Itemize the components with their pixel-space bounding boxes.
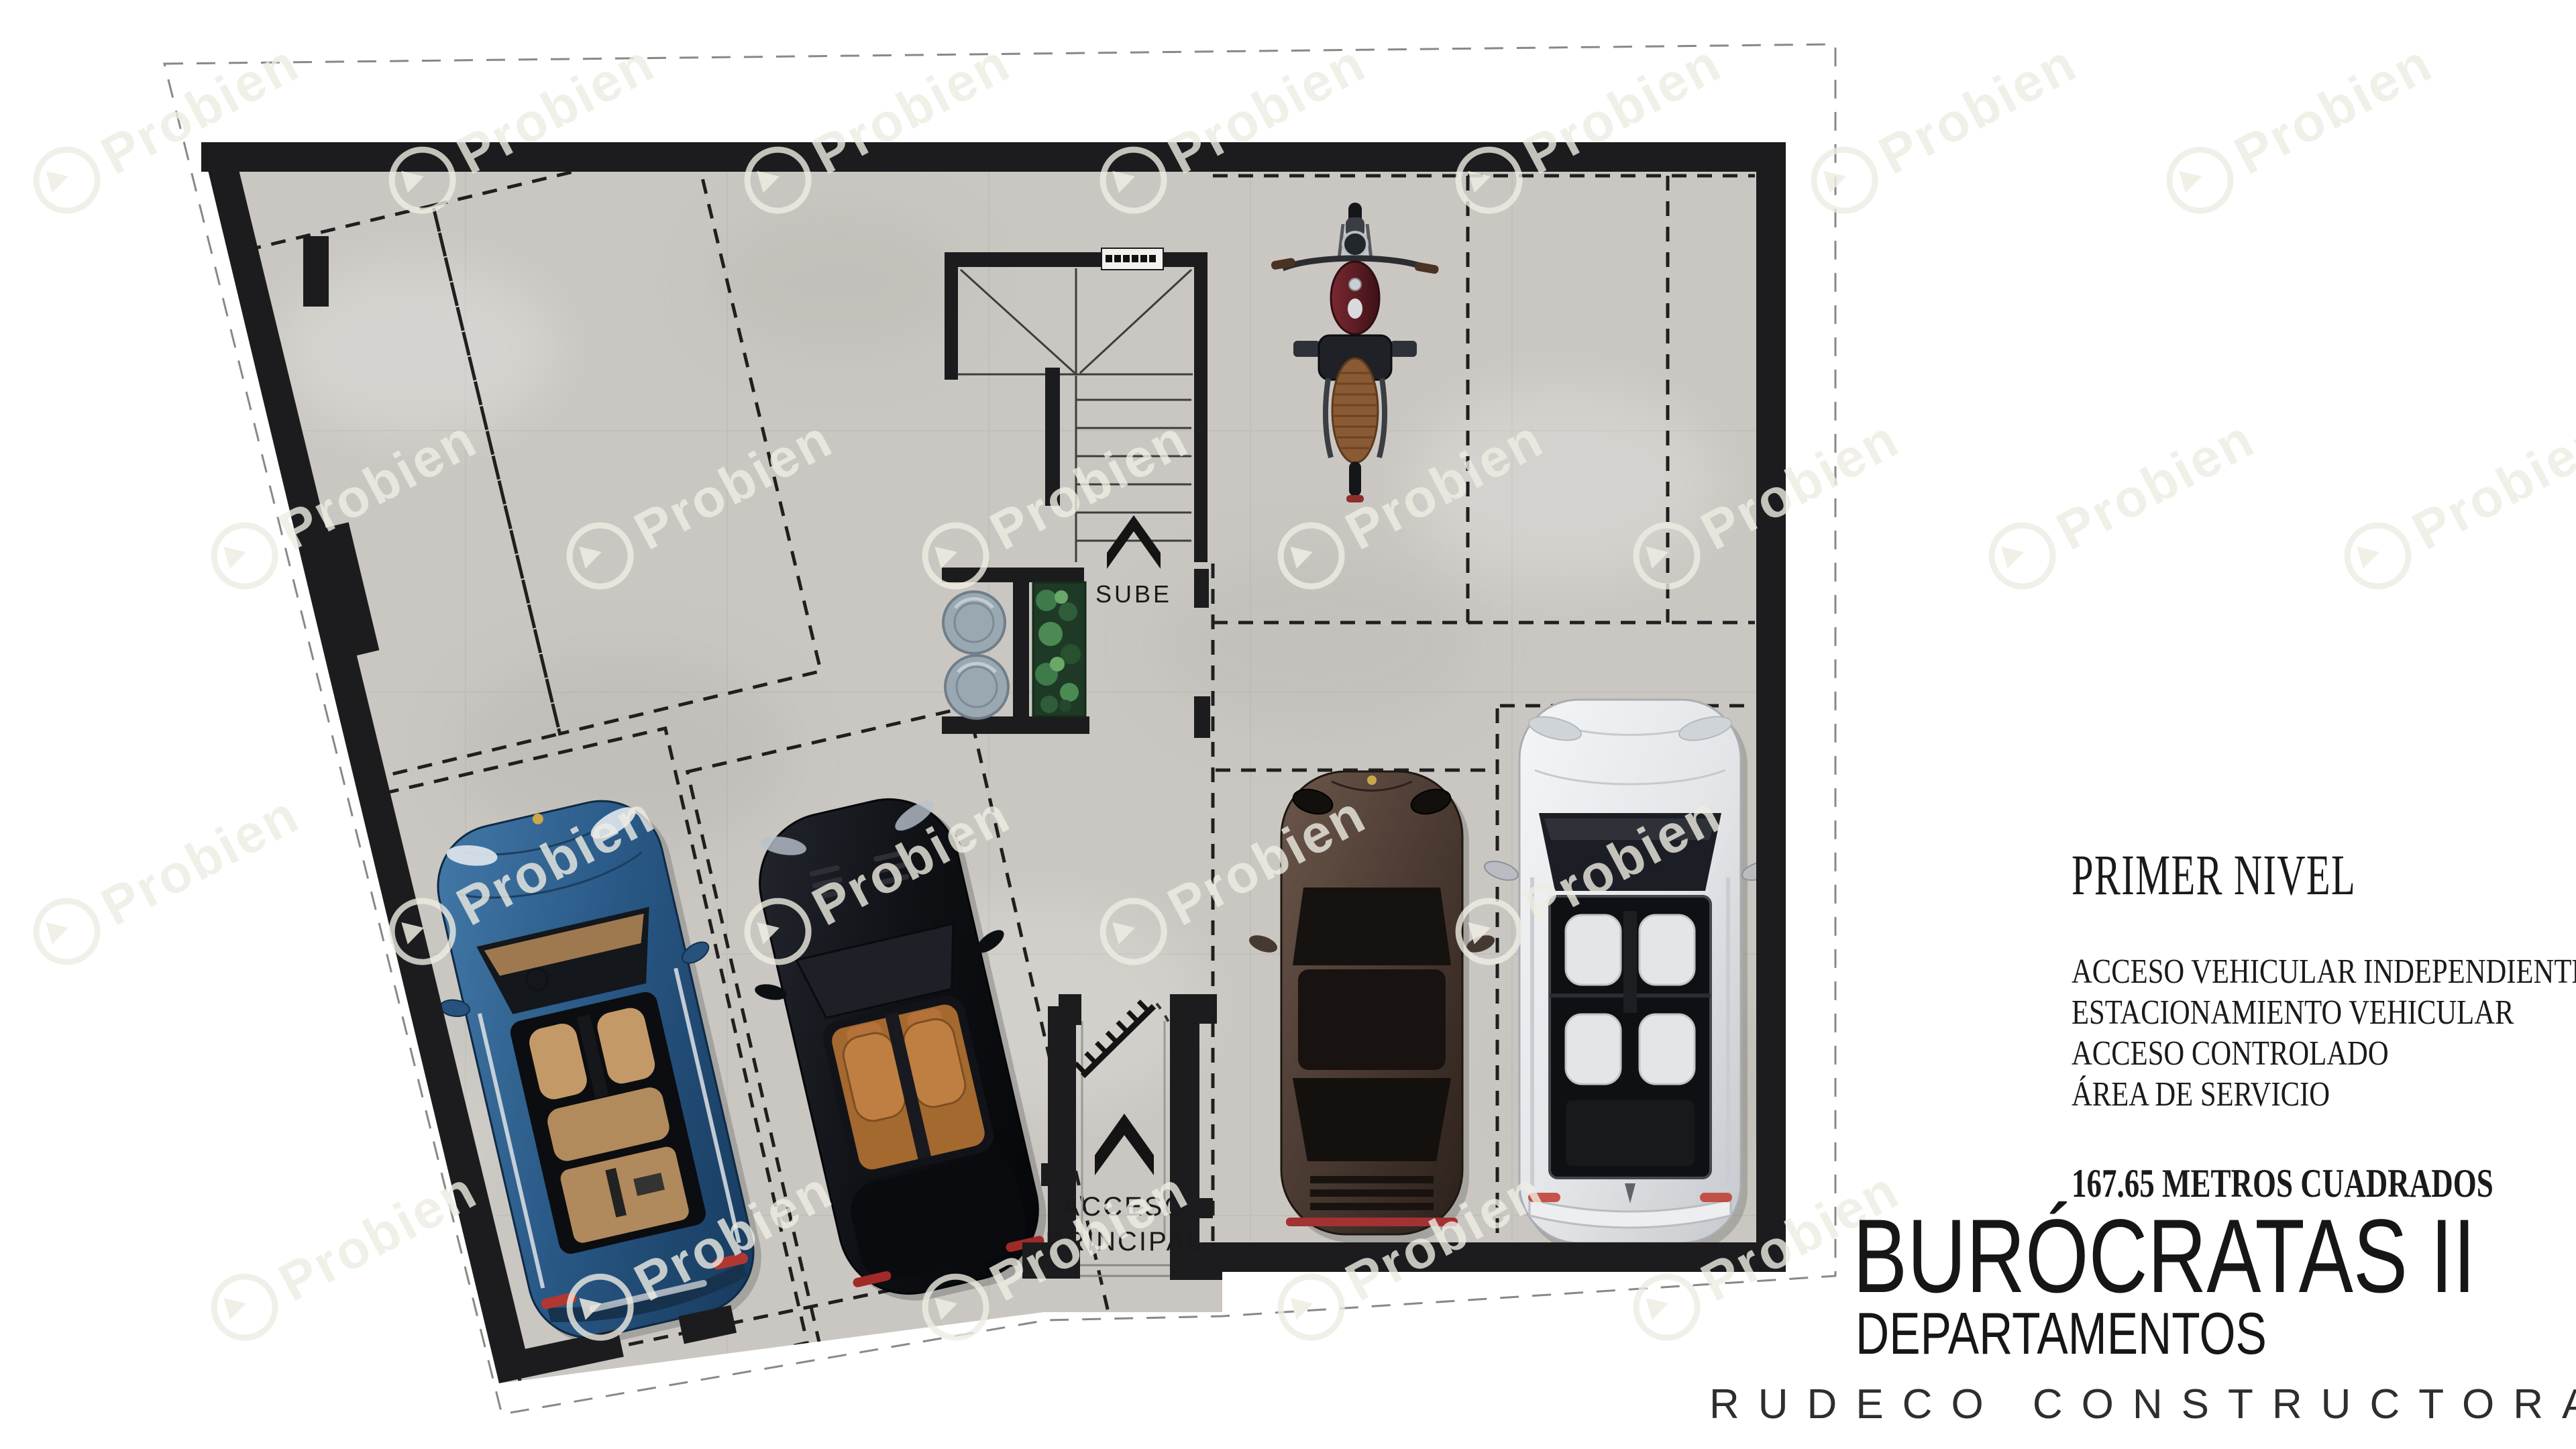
company-name: RUDECO CONSTRUCTORA (1709, 1381, 2576, 1428)
car-bronze-sports (1247, 771, 1497, 1242)
feature-line: ESTACIONAMIENTO VEHICULAR (2072, 992, 2576, 1033)
level-title: PRIMER NIVEL (2072, 841, 2576, 908)
page: SUBE ACCESO PRINCIPAL ProbienProbienProb… (0, 0, 2576, 1449)
feature-line: ACCESO VEHICULAR INDEPENDIENTE (2072, 951, 2576, 992)
acceso-label-line2: PRINCIPAL (1045, 1227, 1203, 1256)
sube-label: SUBE (1095, 580, 1172, 608)
project-name: BURÓCRATAS II (1853, 1204, 2576, 1309)
feature-line: ACCESO CONTROLADO (2072, 1033, 2576, 1074)
top-wall (201, 142, 1786, 172)
column (303, 236, 329, 307)
right-wall (1756, 142, 1786, 1272)
vent-grille (1102, 248, 1163, 270)
acceso-label-line1: ACCESO (1062, 1192, 1187, 1222)
car-silver-suv (1483, 700, 1778, 1251)
info-panel: PRIMER NIVEL ACCESO VEHICULAR INDEPENDIE… (2072, 841, 2576, 1207)
planter (1033, 582, 1085, 716)
project-subtitle: DEPARTAMENTOS (1856, 1303, 2376, 1364)
bottom-wall-right-section (1216, 1242, 1786, 1272)
feature-list: ACCESO VEHICULAR INDEPENDIENTE ESTACIONA… (2072, 951, 2576, 1115)
feature-line: ÁREA DE SERVICIO (2072, 1074, 2576, 1115)
